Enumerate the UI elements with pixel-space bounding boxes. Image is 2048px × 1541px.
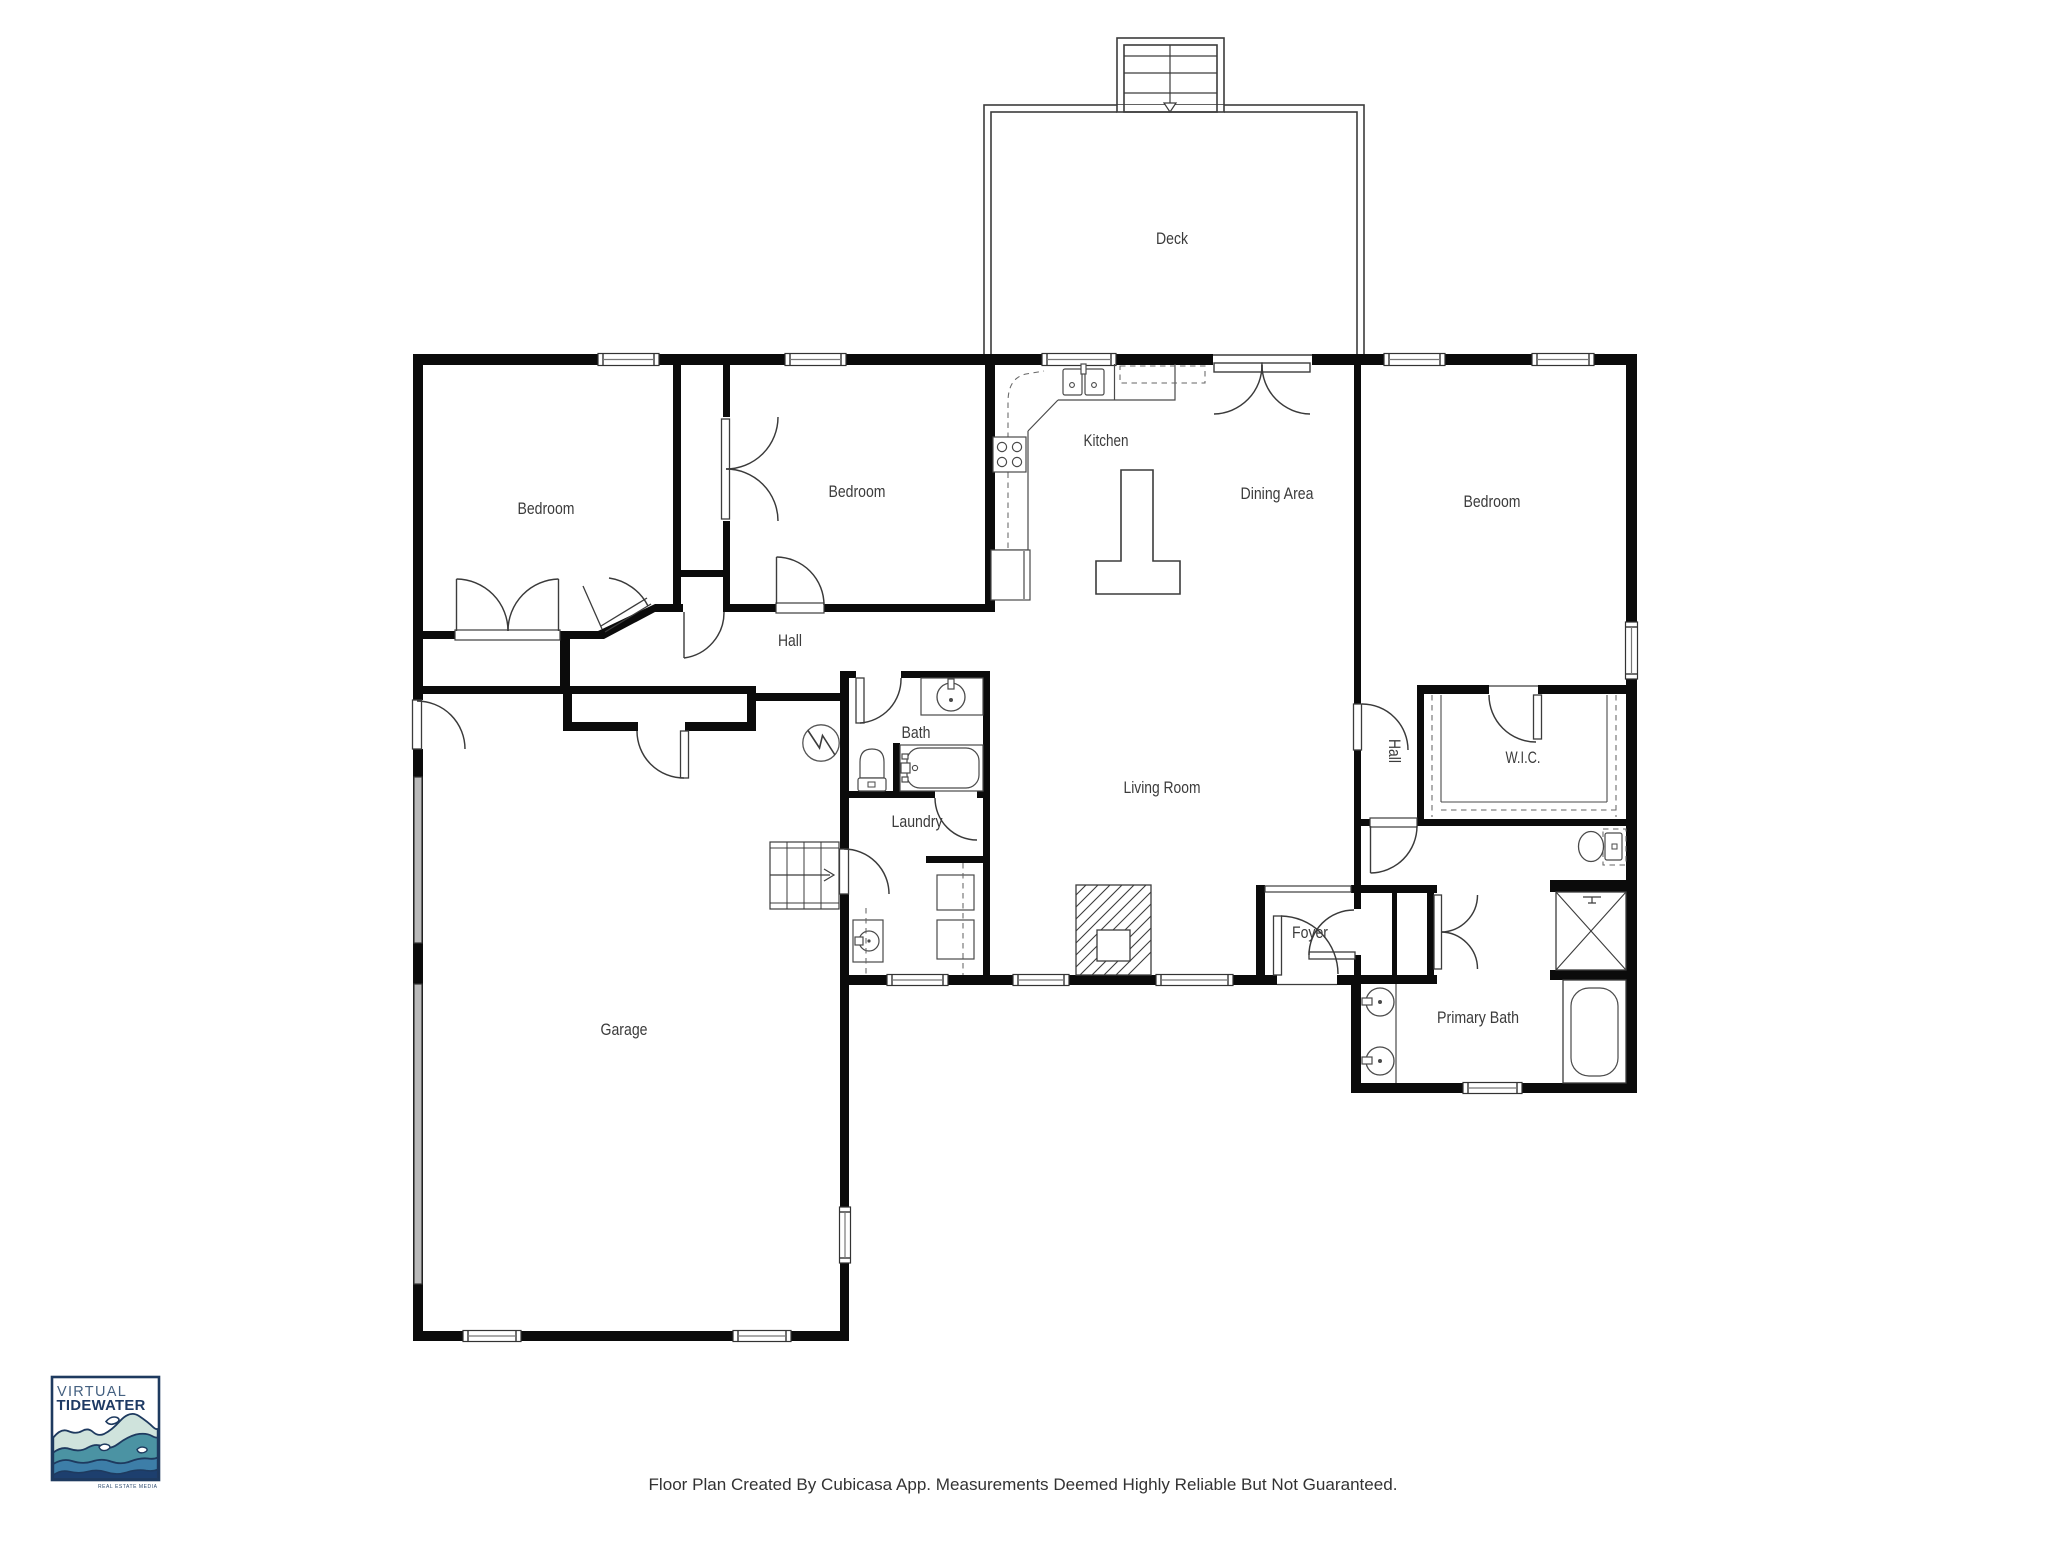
svg-text:Bath: Bath (902, 723, 931, 742)
svg-text:Bedroom: Bedroom (518, 499, 575, 518)
svg-text:Hall: Hall (778, 631, 802, 650)
svg-text:Bedroom: Bedroom (829, 482, 886, 501)
svg-text:Garage: Garage (601, 1020, 648, 1039)
svg-text:Kitchen: Kitchen (1084, 431, 1129, 450)
svg-text:W.I.C.: W.I.C. (1506, 748, 1541, 767)
svg-text:TIDEWATER: TIDEWATER (57, 1398, 146, 1414)
svg-text:REAL ESTATE MEDIA: REAL ESTATE MEDIA (98, 1484, 158, 1490)
svg-text:Dining Area: Dining Area (1241, 484, 1314, 503)
svg-text:Primary Bath: Primary Bath (1437, 1008, 1519, 1027)
svg-text:Living Room: Living Room (1124, 778, 1201, 797)
svg-text:Foyer: Foyer (1292, 923, 1328, 942)
svg-text:Hall: Hall (1385, 739, 1404, 763)
svg-text:Deck: Deck (1156, 229, 1188, 248)
svg-text:Floor Plan Created By Cubicasa: Floor Plan Created By Cubicasa App. Meas… (649, 1475, 1398, 1494)
svg-text:Bedroom: Bedroom (1464, 492, 1521, 511)
svg-text:Laundry: Laundry (892, 812, 943, 831)
